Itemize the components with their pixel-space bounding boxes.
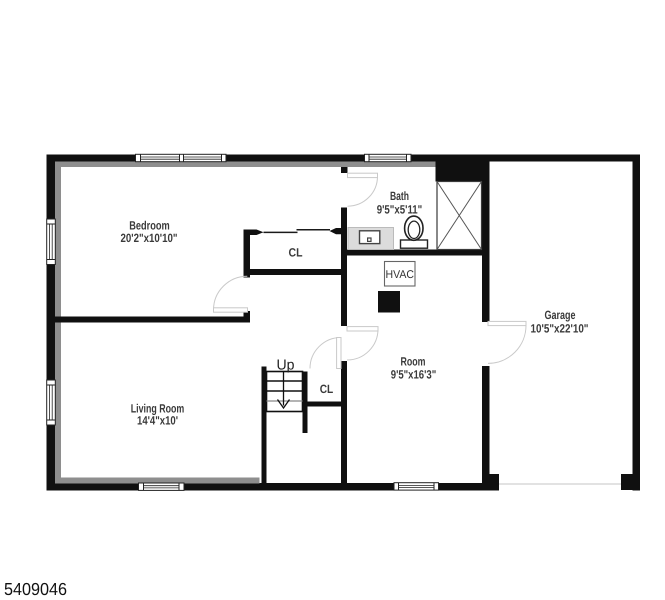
svg-text:HVAC: HVAC — [386, 269, 415, 281]
svg-text:14'4"x10': 14'4"x10' — [137, 414, 178, 428]
svg-text:10'5"x22'10": 10'5"x22'10" — [531, 322, 589, 336]
svg-text:Room: Room — [401, 355, 426, 369]
svg-text:Garage: Garage — [545, 308, 576, 322]
svg-text:CL: CL — [289, 246, 303, 260]
svg-text:Bath: Bath — [390, 189, 409, 203]
svg-text:9'5"x16'3": 9'5"x16'3" — [391, 368, 437, 382]
svg-text:Up: Up — [277, 358, 295, 374]
svg-text:20'2"x10'10": 20'2"x10'10" — [121, 231, 178, 245]
svg-text:5409046: 5409046 — [4, 579, 67, 599]
svg-text:CL: CL — [320, 382, 334, 396]
svg-text:9'5"x5'11": 9'5"x5'11" — [377, 203, 423, 217]
